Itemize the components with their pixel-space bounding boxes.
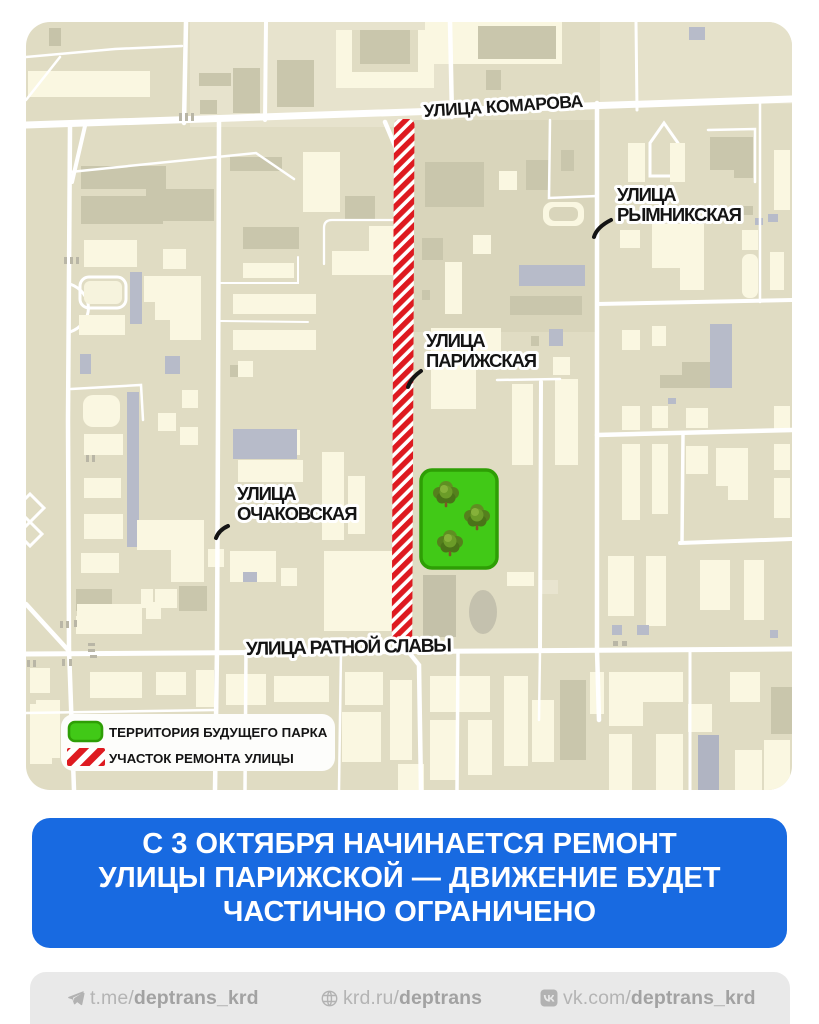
svg-text:РЫМНИКСКАЯ: РЫМНИКСКАЯ bbox=[617, 204, 742, 225]
svg-text:ОЧАКОВСКАЯ: ОЧАКОВСКАЯ bbox=[237, 503, 357, 524]
svg-text:УЛИЦА РАТНОЙ СЛАВЫ: УЛИЦА РАТНОЙ СЛАВЫ bbox=[246, 634, 452, 660]
svg-text:УЛИЦА: УЛИЦА bbox=[617, 184, 676, 205]
svg-text:УЛИЦА: УЛИЦА bbox=[237, 483, 296, 504]
svg-text:УЧАСТОК РЕМОНТА УЛИЦЫ: УЧАСТОК РЕМОНТА УЛИЦЫ bbox=[109, 751, 294, 766]
svg-text:УЛИЦА: УЛИЦА bbox=[426, 330, 485, 351]
svg-text:ПАРИЖСКАЯ: ПАРИЖСКАЯ bbox=[426, 350, 537, 371]
svg-text:ТЕРРИТОРИЯ БУДУЩЕГО ПАРКА: ТЕРРИТОРИЯ БУДУЩЕГО ПАРКА bbox=[109, 725, 328, 740]
